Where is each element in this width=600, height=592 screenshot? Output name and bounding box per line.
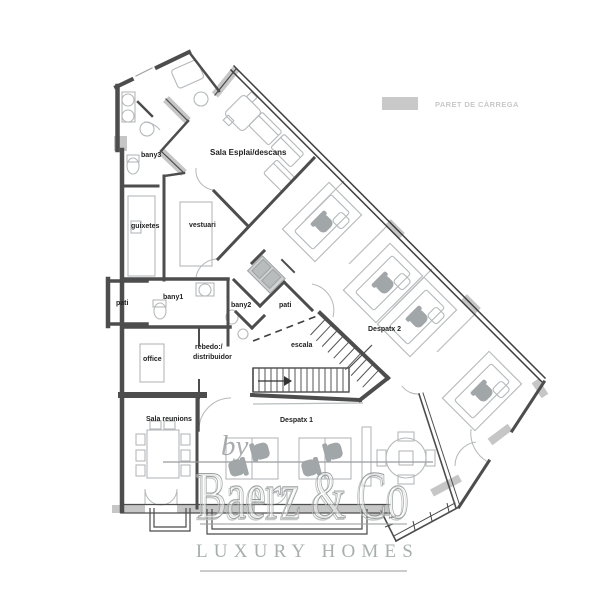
svg-text:bany2: bany2	[231, 302, 251, 309]
svg-text:Sala Esplai/descans: Sala Esplai/descans	[210, 148, 287, 157]
svg-text:distribuidor: distribuidor	[193, 354, 232, 361]
svg-text:LUXURY HOMES: LUXURY HOMES	[196, 541, 419, 562]
svg-text:bany3: bany3	[141, 152, 161, 159]
svg-text:Baerz & Co: Baerz & Co	[197, 457, 409, 533]
svg-text:bany1: bany1	[163, 294, 183, 301]
svg-text:office: office	[143, 356, 162, 363]
svg-text:escala: escala	[291, 342, 313, 349]
svg-text:Despatx 1: Despatx 1	[280, 417, 313, 424]
svg-text:rebedo:/: rebedo:/	[195, 344, 223, 351]
svg-text:vestuari: vestuari	[189, 222, 216, 229]
svg-text:guixetes: guixetes	[131, 223, 160, 230]
svg-text:pati: pati	[279, 302, 292, 309]
svg-text:Despatx 2: Despatx 2	[368, 326, 401, 333]
svg-text:PARET DE CÀRREGA: PARET DE CÀRREGA	[435, 100, 519, 109]
svg-text:pati: pati	[116, 300, 129, 307]
svg-text:Sala reunions: Sala reunions	[146, 416, 192, 423]
